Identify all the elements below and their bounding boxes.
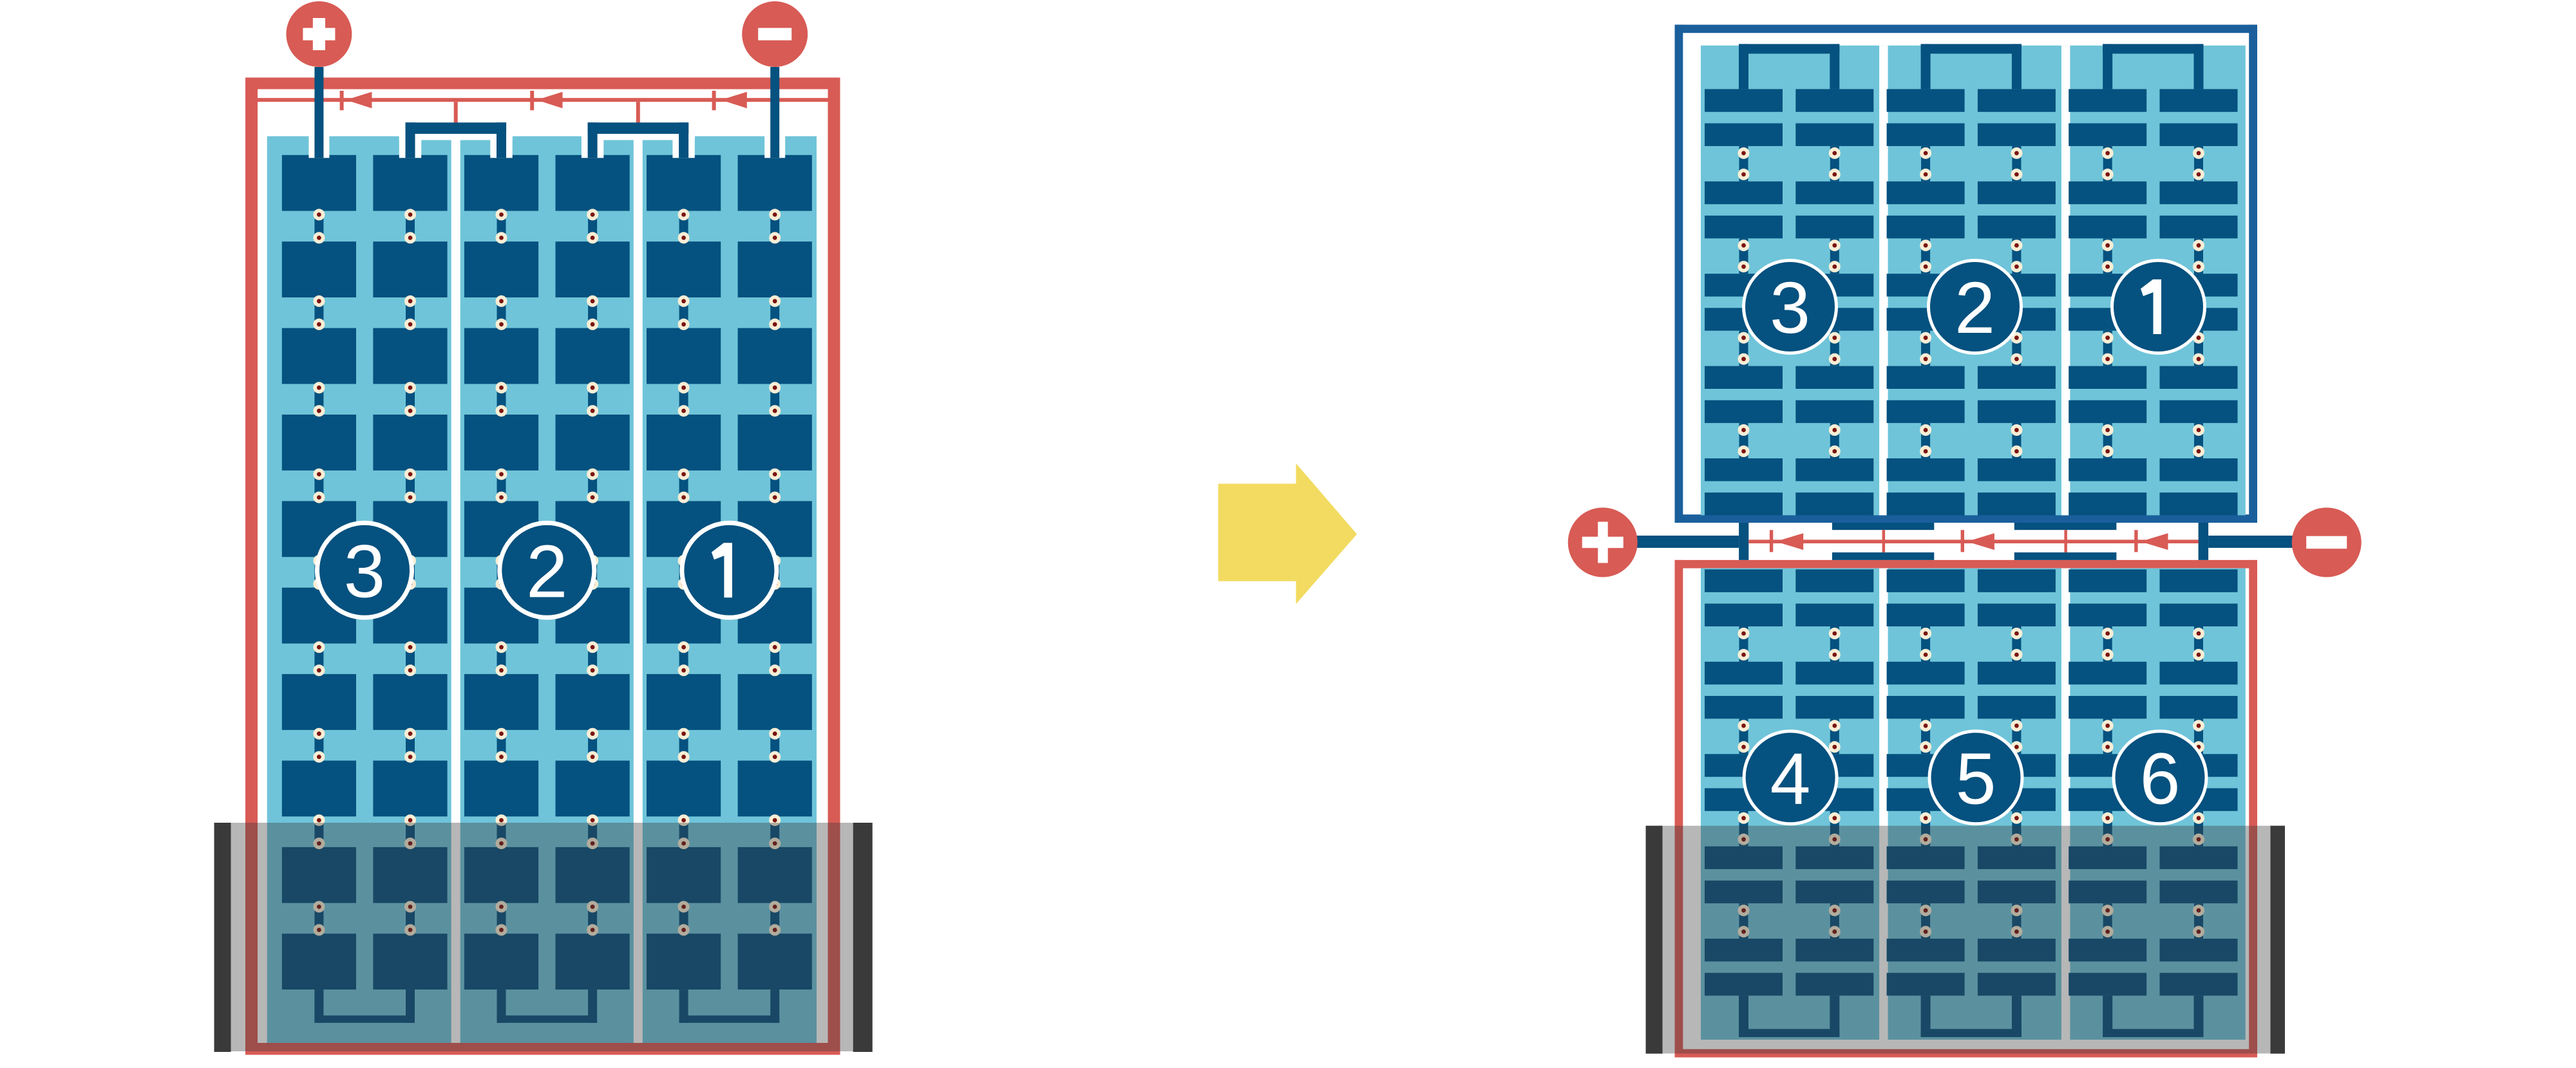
- svg-text:2: 2: [526, 530, 568, 614]
- svg-text:3: 3: [1770, 267, 1810, 348]
- svg-text:3: 3: [344, 530, 386, 614]
- svg-text:4: 4: [1770, 738, 1811, 819]
- svg-text:6: 6: [2140, 738, 2181, 819]
- svg-text:5: 5: [1956, 738, 1996, 819]
- svg-text:2: 2: [1955, 267, 1995, 348]
